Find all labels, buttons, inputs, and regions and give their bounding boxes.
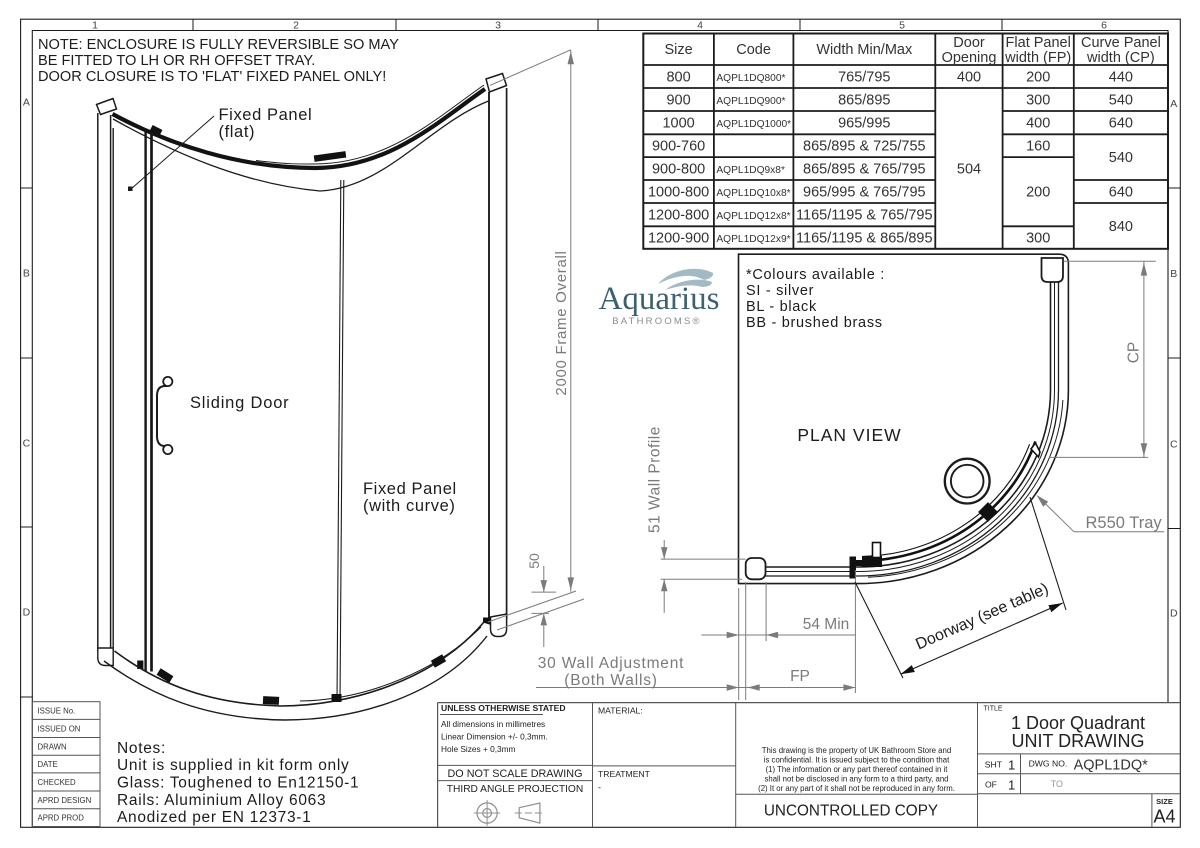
svg-text:AQPL1DQ1000*: AQPL1DQ1000* [716, 119, 791, 130]
svg-text:THIRD ANGLE PROJECTION: THIRD ANGLE PROJECTION [447, 784, 583, 795]
svg-text:900-800: 900-800 [652, 162, 705, 178]
svg-text:(2) It or any part of it shall: (2) It or any part of it shall not be re… [758, 784, 955, 793]
svg-text:504: 504 [957, 161, 981, 177]
svg-text:BATHROOMS®: BATHROOMS® [612, 316, 702, 327]
svg-text:160: 160 [1026, 139, 1050, 155]
svg-text:900-760: 900-760 [652, 139, 705, 155]
svg-text:A: A [1170, 98, 1177, 110]
svg-text:1: 1 [92, 19, 98, 31]
svg-text:TO: TO [1051, 779, 1063, 789]
svg-text:(with curve): (with curve) [363, 497, 455, 515]
svg-text:-: - [598, 783, 601, 793]
svg-text:1000: 1000 [662, 116, 694, 132]
svg-text:(1) The information or any par: (1) The information or any part thereof … [766, 765, 949, 774]
svg-text:540: 540 [1109, 93, 1133, 109]
svg-text:Aquarius: Aquarius [599, 281, 720, 317]
svg-text:1165/1195 & 865/895: 1165/1195 & 865/895 [796, 231, 933, 247]
svg-text:640: 640 [1109, 116, 1133, 132]
svg-text:Door: Door [953, 35, 985, 51]
svg-text:B: B [1170, 268, 1177, 280]
svg-text:300: 300 [1026, 231, 1050, 247]
svg-text:AQPL1DQ900*: AQPL1DQ900* [716, 96, 785, 107]
svg-text:Anodized per EN 12373-1: Anodized per EN 12373-1 [117, 809, 311, 826]
svg-text:440: 440 [1109, 70, 1133, 86]
svg-text:UNIT DRAWING: UNIT DRAWING [1012, 731, 1145, 751]
svg-text:PLAN VIEW: PLAN VIEW [797, 425, 901, 445]
svg-text:FP: FP [790, 668, 810, 685]
svg-text:ISSUED ON: ISSUED ON [38, 725, 81, 734]
svg-text:MATERIAL:: MATERIAL: [598, 706, 643, 716]
svg-text:All dimensions in millimetres: All dimensions in millimetres [441, 719, 545, 729]
svg-text:Flat Panel: Flat Panel [1006, 35, 1071, 51]
svg-text:APRD PROD: APRD PROD [38, 814, 85, 823]
svg-text:540: 540 [1109, 150, 1133, 166]
svg-text:AQPL1DQ12x9*: AQPL1DQ12x9* [716, 234, 790, 245]
svg-text:(flat): (flat) [219, 123, 256, 141]
svg-text:5: 5 [899, 19, 905, 31]
svg-text:Fixed Panel: Fixed Panel [219, 106, 313, 124]
svg-text:BB - brushed brass: BB - brushed brass [746, 315, 883, 331]
svg-text:DWG NO.: DWG NO. [1029, 759, 1068, 769]
svg-text:AQPL1DQ*: AQPL1DQ* [1074, 758, 1148, 774]
svg-text:Unit is supplied in kit form o: Unit is supplied in kit form only [117, 757, 349, 774]
svg-text:800: 800 [666, 70, 690, 86]
svg-text:SHT: SHT [985, 760, 1003, 770]
svg-text:This drawing is the property o: This drawing is the property of UK Bathr… [762, 746, 951, 755]
svg-text:D: D [23, 607, 31, 619]
svg-text:Fixed Panel: Fixed Panel [363, 480, 457, 498]
svg-text:BE FITTED TO LH OR RH OFFSET T: BE FITTED TO LH OR RH OFFSET TRAY. [38, 53, 315, 69]
svg-text:UNCONTROLLED COPY: UNCONTROLLED COPY [764, 803, 938, 820]
svg-text:965/995 & 765/795: 965/995 & 765/795 [803, 185, 926, 201]
svg-text:Width Min/Max: Width Min/Max [816, 42, 913, 58]
svg-text:765/795: 765/795 [838, 70, 890, 86]
svg-text:is confidential. It is issued: is confidential. It is issued subject to… [764, 756, 950, 765]
svg-text:865/895: 865/895 [838, 93, 890, 109]
svg-text:DO NOT SCALE DRAWING: DO NOT SCALE DRAWING [448, 768, 583, 780]
svg-text:840: 840 [1109, 219, 1133, 235]
svg-text:Curve Panel: Curve Panel [1081, 35, 1161, 51]
svg-text:Opening: Opening [942, 50, 997, 66]
svg-text:1: 1 [1008, 778, 1015, 793]
svg-text:640: 640 [1109, 185, 1133, 201]
svg-text:54 Min: 54 Min [803, 616, 850, 633]
svg-text:965/995: 965/995 [838, 116, 890, 132]
svg-text:200: 200 [1026, 185, 1050, 201]
svg-text:Notes:: Notes: [117, 740, 166, 757]
svg-text:865/895 & 765/795: 865/895 & 765/795 [803, 162, 926, 178]
svg-text:CHECKED: CHECKED [38, 778, 76, 787]
svg-text:C: C [23, 438, 31, 450]
svg-text:ISSUE No.: ISSUE No. [38, 707, 76, 716]
svg-text:SIZE: SIZE [1156, 797, 1173, 806]
svg-text:A: A [23, 97, 30, 109]
svg-text:*Colours available :: *Colours available : [746, 267, 885, 283]
svg-text:DOOR CLOSURE IS TO 'FLAT' FIXE: DOOR CLOSURE IS TO 'FLAT' FIXED PANEL ON… [38, 69, 386, 85]
svg-text:30 Wall Adjustment: 30 Wall Adjustment [538, 655, 685, 672]
svg-text:TREATMENT: TREATMENT [598, 769, 651, 779]
svg-text:Hole Sizes + 0,3mm: Hole Sizes + 0,3mm [441, 744, 516, 754]
svg-text:UNLESS OTHERWISE STATED: UNLESS OTHERWISE STATED [441, 703, 566, 713]
svg-text:865/895 & 725/755: 865/895 & 725/755 [803, 139, 926, 155]
svg-text:1: 1 [1008, 758, 1015, 773]
svg-text:Glass: Toughened to En12150-1: Glass: Toughened to En12150-1 [117, 775, 359, 792]
svg-text:1000-800: 1000-800 [648, 185, 709, 201]
svg-text:900: 900 [666, 93, 690, 109]
svg-text:Code: Code [736, 42, 771, 58]
svg-text:(Both Walls): (Both Walls) [564, 672, 657, 689]
svg-text:50: 50 [526, 553, 542, 569]
svg-text:C: C [1170, 439, 1178, 451]
svg-text:DATE: DATE [38, 760, 58, 769]
svg-text:2000 Frame Overall: 2000 Frame Overall [553, 250, 570, 395]
svg-text:A4: A4 [1153, 807, 1175, 827]
svg-text:CP: CP [1126, 342, 1143, 364]
svg-text:TITLE: TITLE [984, 706, 1003, 713]
svg-text:AQPL1DQ12x8*: AQPL1DQ12x8* [716, 211, 790, 222]
svg-text:400: 400 [1026, 116, 1050, 132]
svg-text:width (CP): width (CP) [1086, 50, 1155, 66]
svg-text:AQPL1DQ800*: AQPL1DQ800* [716, 73, 785, 84]
svg-text:D: D [1170, 608, 1178, 620]
svg-text:width (FP): width (FP) [1004, 50, 1071, 66]
svg-text:1200-900: 1200-900 [648, 231, 709, 247]
svg-text:shall not be disclosed in any: shall not be disclosed in any form to a … [764, 775, 948, 784]
svg-text:Rails: Aluminium Alloy 6063: Rails: Aluminium Alloy 6063 [117, 792, 326, 809]
svg-text:DRAWN: DRAWN [38, 742, 67, 751]
svg-text:4: 4 [697, 19, 703, 31]
svg-text:Linear Dimension +/- 0,3mm.: Linear Dimension +/- 0,3mm. [441, 732, 548, 742]
svg-text:1200-800: 1200-800 [648, 208, 709, 224]
svg-text:NOTE: ENCLOSURE IS FULLY REVER: NOTE: ENCLOSURE IS FULLY REVERSIBLE SO M… [38, 37, 399, 53]
svg-text:Size: Size [664, 42, 692, 58]
svg-text:51 Wall Profile: 51 Wall Profile [647, 426, 664, 533]
svg-text:3: 3 [495, 19, 501, 31]
svg-text:AQPL1DQ10x8*: AQPL1DQ10x8* [716, 188, 790, 199]
svg-text:300: 300 [1026, 93, 1050, 109]
svg-text:6: 6 [1101, 19, 1107, 31]
svg-text:1165/1195 & 765/795: 1165/1195 & 765/795 [796, 208, 933, 224]
svg-text:APRD DESIGN: APRD DESIGN [38, 796, 92, 805]
svg-text:400: 400 [957, 70, 981, 86]
svg-text:Sliding Door: Sliding Door [190, 394, 289, 412]
svg-text:2: 2 [293, 19, 299, 31]
svg-text:OF: OF [985, 780, 997, 790]
svg-text:B: B [23, 268, 30, 280]
svg-text:1 Door Quadrant: 1 Door Quadrant [1011, 713, 1145, 733]
svg-text:R550 Tray: R550 Tray [1086, 514, 1163, 532]
svg-text:AQPL1DQ9x8*: AQPL1DQ9x8* [716, 165, 785, 176]
svg-text:SI - silver: SI - silver [746, 283, 814, 299]
svg-text:200: 200 [1026, 70, 1050, 86]
svg-text:BL - black: BL - black [746, 299, 817, 315]
